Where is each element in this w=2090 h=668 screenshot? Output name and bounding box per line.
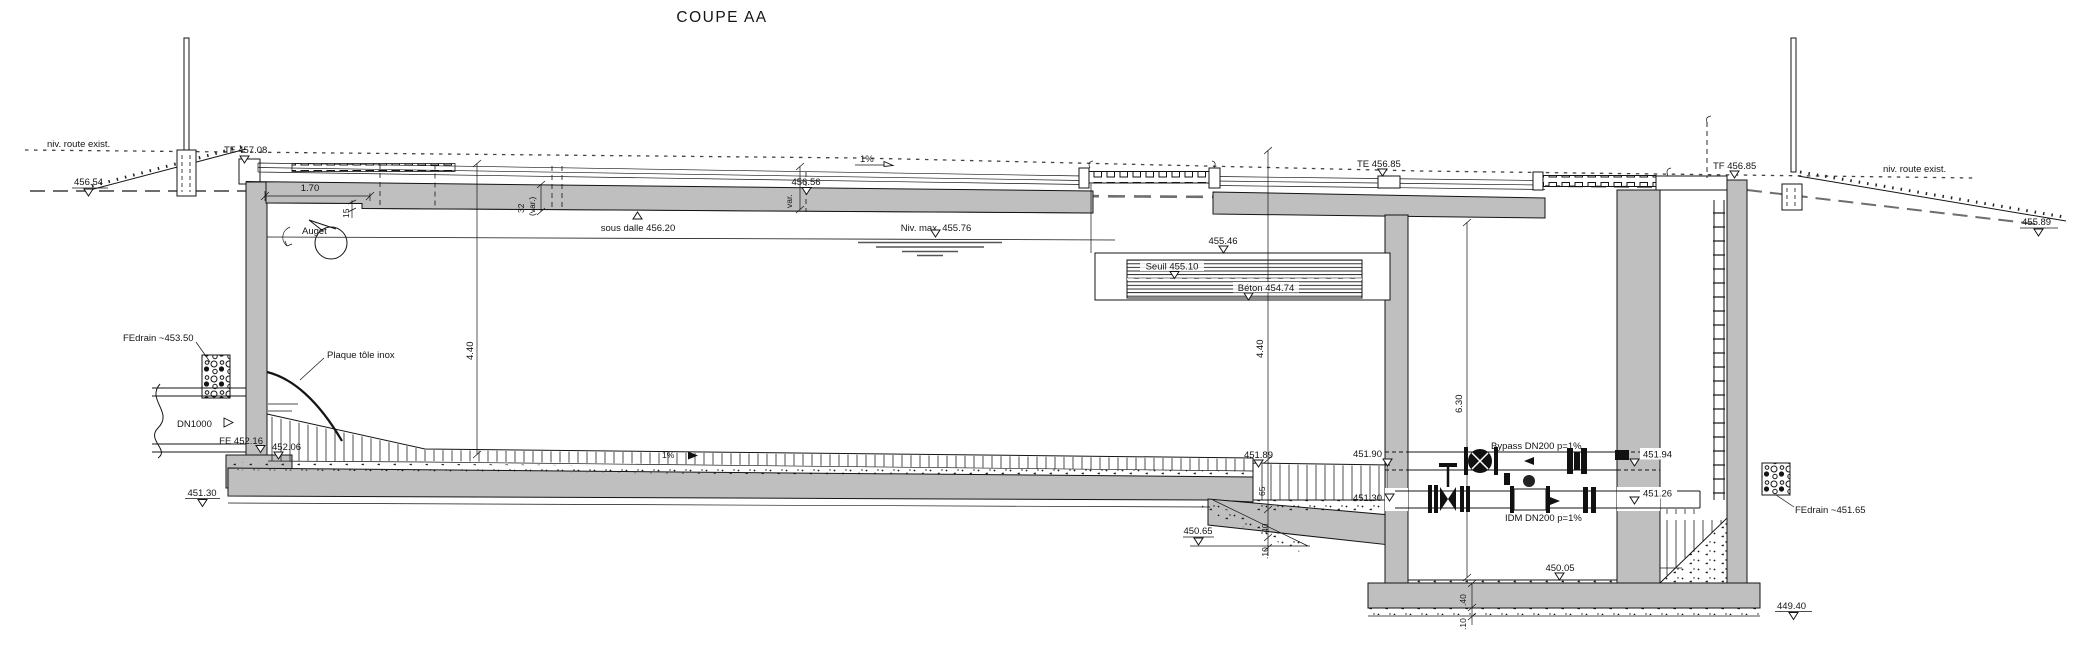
- level-marker-icon: [1789, 613, 1798, 620]
- level-marker-icon: [84, 189, 93, 196]
- level-seuil: Seuil 455.10: [1146, 262, 1199, 273]
- lean-concrete-line: [228, 503, 1210, 507]
- outlet-shaft: [1660, 200, 1727, 583]
- route-level-label-right: niv. route exist.: [1883, 164, 1946, 175]
- idm-label: IDM DN200 p=1%: [1505, 513, 1582, 524]
- level-marker-icon: [1378, 169, 1387, 176]
- dim-65: 65: [1257, 486, 1267, 496]
- bypass-wall-bracket: [1615, 450, 1629, 460]
- dim-32: 32: [516, 203, 526, 213]
- roof-curb-te: [1378, 176, 1400, 188]
- level-456-56: 456.56: [791, 177, 820, 188]
- dim-15: 15: [341, 208, 351, 218]
- dim-1-70: 1.70: [301, 183, 320, 194]
- annotations: TF 457.08 456.56 1% sous dalle 456.20 Ni…: [123, 145, 1866, 620]
- signal-pole-left: [184, 38, 189, 150]
- grating-curb-b: [1209, 168, 1220, 188]
- level-tf-457-08: TF 457.08: [224, 145, 267, 156]
- bypass-fitting-b: [1581, 448, 1587, 474]
- dim-4-40-left: 4.40: [465, 342, 476, 361]
- drain-gravel-right: [1762, 463, 1790, 495]
- slab-speckle: [1368, 608, 1760, 615]
- flow-arrow-right-icon: [1550, 497, 1560, 505]
- grating-curb-a: [1079, 168, 1089, 188]
- structure: [226, 116, 1760, 608]
- flow-arrow-left-icon: [1524, 457, 1534, 465]
- fedrain-right-label: FEdrain ~451.65: [1795, 505, 1866, 516]
- valve-flange-a: [1428, 485, 1432, 513]
- parapet-left: [239, 159, 260, 184]
- dim-6-30: 6.30: [1454, 395, 1465, 414]
- dimensions: 1.70 15 32 (var.) var. 4.40 4.40 65 40 .…: [261, 147, 1476, 630]
- plaque-label: Plaque tôle inox: [327, 350, 395, 361]
- dn1000-label: DN1000: [177, 419, 212, 430]
- flow-meter-sensor: [1523, 475, 1535, 487]
- flow-meter: [1514, 489, 1546, 510]
- plate-fixings: [268, 404, 298, 411]
- water-symbol-icon: [858, 243, 1002, 256]
- plate-leader: [300, 358, 324, 380]
- dim-10b: .10: [1458, 618, 1468, 630]
- slope-arrow-icon: [884, 162, 893, 167]
- level-451-30-mid: 451.30: [1353, 493, 1382, 504]
- roof-strip-grating: [292, 164, 455, 172]
- pipe-bed-hatch: [1662, 509, 1700, 514]
- level-451-94: 451.94: [1643, 450, 1672, 461]
- floor-slope-label: 1%: [662, 450, 675, 460]
- level-455-46: 455.46: [1208, 236, 1237, 247]
- auget-label: Auget: [302, 226, 327, 237]
- signal-pole-right: [1791, 38, 1796, 172]
- level-te-456-85: TE 456.85: [1357, 159, 1401, 170]
- pipe-fitting-a: [1583, 487, 1588, 513]
- level-456-54: 456.54: [74, 177, 103, 188]
- chamber-floor-speckle: [1408, 580, 1617, 585]
- level-450-65: 450.65: [1183, 526, 1212, 537]
- bypass-drain: [1504, 473, 1510, 485]
- floor-hatch: [268, 416, 1253, 471]
- dim-4-40-right: 4.40: [1255, 340, 1266, 359]
- drawing-title: COUPE AA: [676, 9, 767, 26]
- route-level-label-left: niv. route exist.: [47, 139, 110, 150]
- level-marker-icon: [1219, 246, 1228, 253]
- vegetation-ticks-left: [92, 146, 244, 186]
- water-level-line: [267, 237, 1115, 240]
- drain-gravel-left: [202, 355, 230, 398]
- level-451-89: 451.89: [1244, 450, 1273, 461]
- level-451-90: 451.90: [1353, 449, 1382, 460]
- level-beton: Béton 454.74: [1238, 283, 1295, 294]
- slope-right: [1798, 176, 2066, 221]
- roof-slope-label: 1%: [860, 154, 874, 165]
- dim-40b: .40: [1458, 594, 1468, 606]
- level-sous-dalle: sous dalle 456.20: [601, 223, 675, 234]
- dim-var: var.: [784, 194, 794, 208]
- drain-leader-right: [1776, 495, 1794, 507]
- level-451-26: 451.26: [1643, 489, 1672, 500]
- pipe-fitting-b: [1591, 487, 1596, 513]
- chamber-grating: [1540, 176, 1656, 187]
- chamber-wall-right: [1617, 190, 1660, 583]
- level-marker-icon: [1555, 573, 1564, 580]
- tank-wall-left: [246, 182, 267, 458]
- pole-foundation-right: [1782, 184, 1802, 210]
- dim-10: .10: [1260, 547, 1270, 559]
- dim-32-var: (var.): [527, 196, 537, 216]
- weir-grating: [1085, 172, 1215, 184]
- level-marker-up-icon: [633, 212, 642, 219]
- chamber-base-slab: [1368, 583, 1760, 608]
- section-drawing: COUPE AA niv. route exist. niv. route ex…: [0, 0, 2090, 668]
- level-marker-icon: [1194, 538, 1203, 545]
- vegetation-ticks-right: [1800, 172, 2064, 217]
- shaft-cover: [1656, 176, 1727, 190]
- roof-slab-right: [1213, 192, 1545, 218]
- level-455-89: 455.89: [2022, 217, 2051, 228]
- hatch-hook-icon: [1707, 116, 1712, 122]
- ladder-rungs: [1713, 200, 1725, 500]
- pole-foundation-left: [177, 150, 196, 196]
- level-marker-icon: [2034, 229, 2043, 236]
- bypass-label: Bypass DN200 p=1%: [1491, 441, 1582, 452]
- valve-flange-b: [1434, 485, 1438, 513]
- drawing-sheet: COUPE AA niv. route exist. niv. route ex…: [0, 0, 2090, 668]
- level-450-05: 450.05: [1545, 563, 1574, 574]
- level-tf-456-85: TF 456.85: [1713, 161, 1756, 172]
- pipe-direction-icon: [224, 418, 233, 427]
- level-449-40: 449.40: [1777, 601, 1806, 612]
- fedrain-left-label: FEdrain ~453.50: [123, 333, 194, 344]
- level-marker-icon: [198, 500, 207, 507]
- pipe-break-icon: [155, 384, 164, 458]
- outer-wall-right: [1727, 180, 1747, 585]
- level-452-06: 452.06: [272, 442, 301, 453]
- rotation-arrow-icon: [283, 227, 292, 246]
- level-451-30-left: 451.30: [187, 488, 216, 499]
- slope-left: [90, 149, 246, 190]
- grating-curb-c: [1533, 172, 1543, 190]
- dim-40: 40: [1260, 523, 1270, 533]
